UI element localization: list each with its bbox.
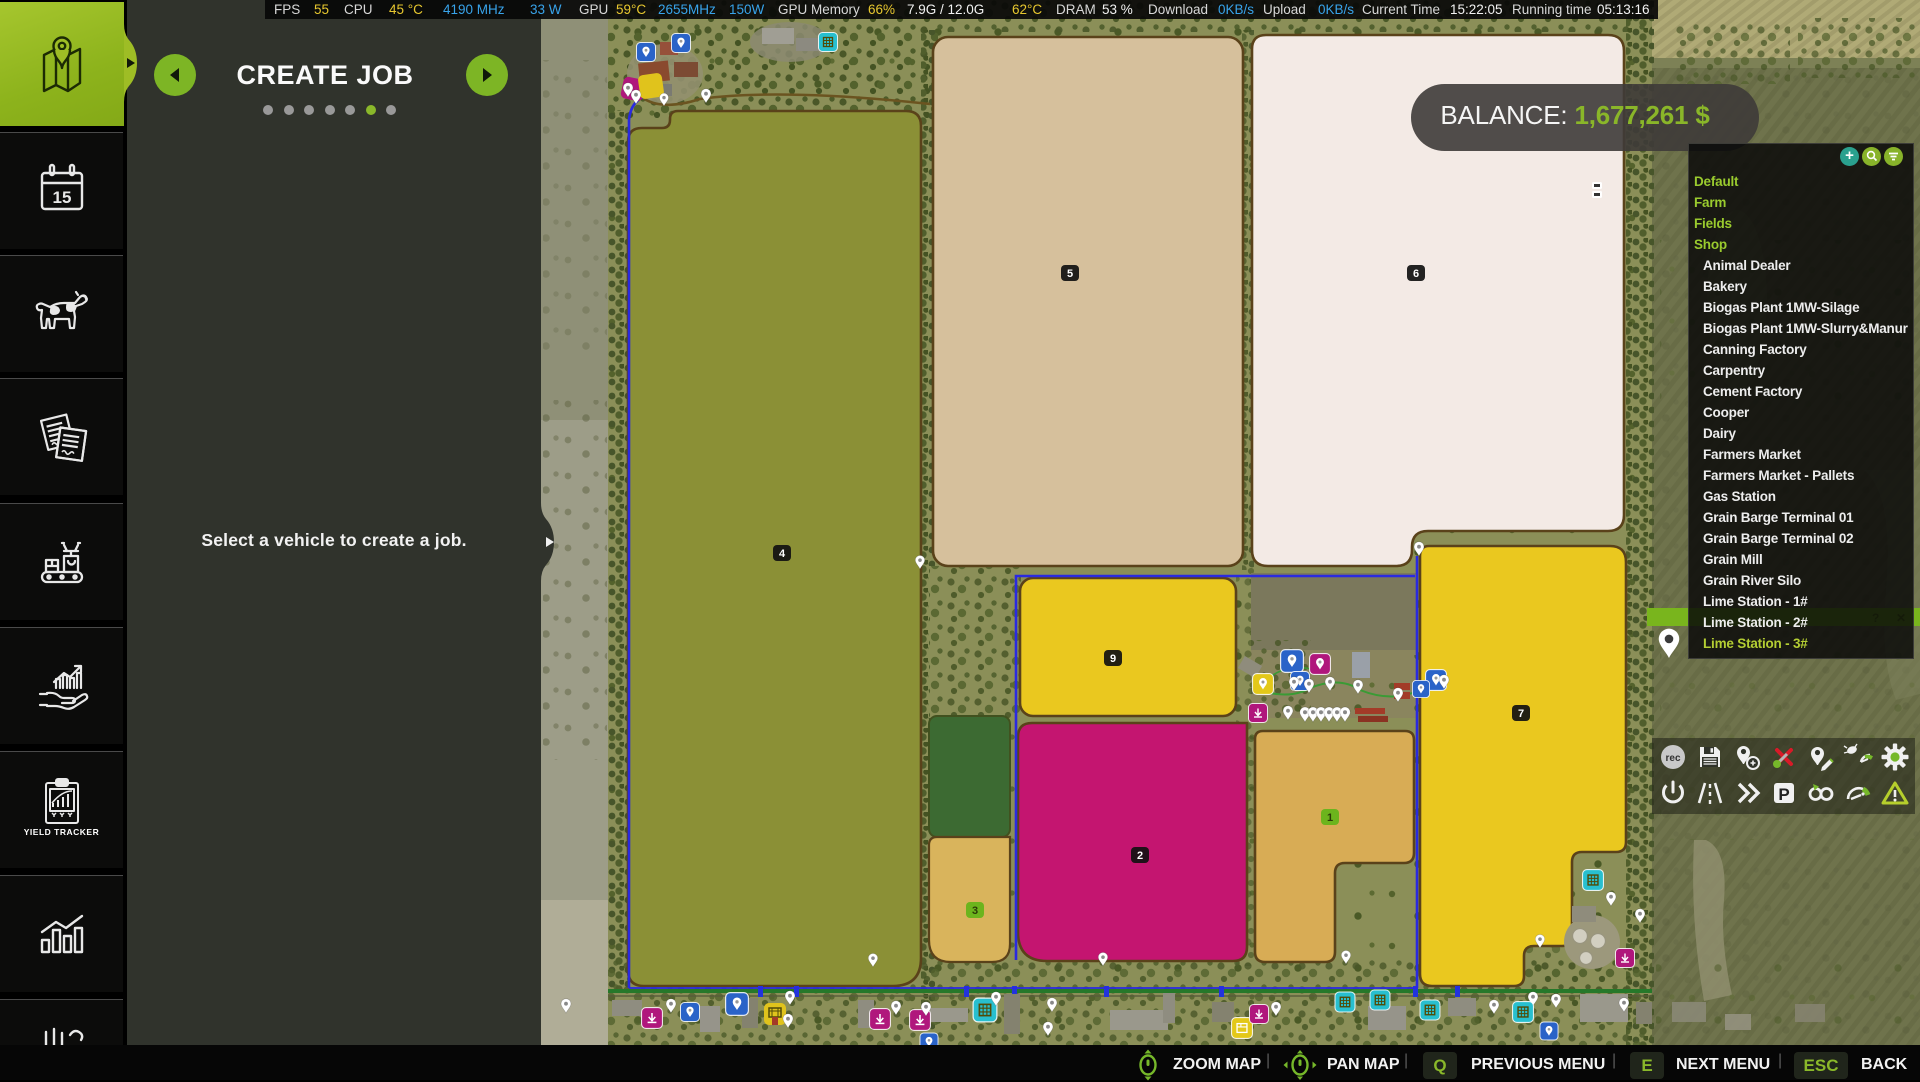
svg-text:rec: rec [1665,753,1680,764]
svg-text:4: 4 [779,548,786,560]
svg-text:2: 2 [1137,850,1143,862]
svg-text:3: 3 [972,905,978,917]
svg-text:9: 9 [1110,653,1116,665]
svg-text:7: 7 [1518,708,1524,720]
svg-text:1: 1 [1327,812,1333,824]
svg-text:5: 5 [1067,268,1073,280]
svg-text:P: P [1778,785,1789,804]
svg-text:15: 15 [53,188,72,207]
svg-text:6: 6 [1413,268,1419,280]
